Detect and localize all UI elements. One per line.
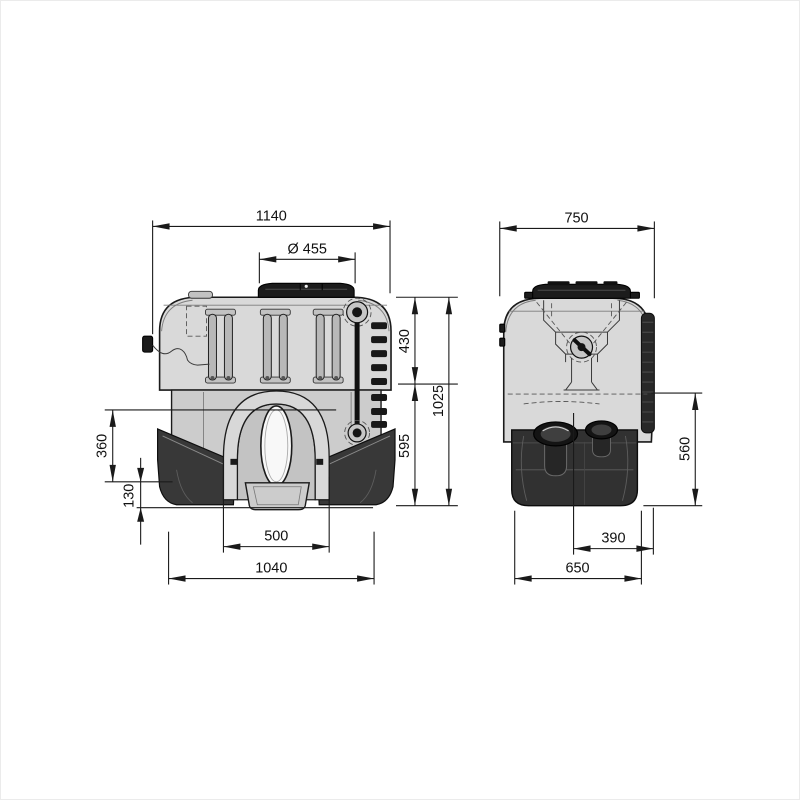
dim-label-side-outlet-offset: 390 — [601, 531, 625, 547]
dim-label-front-base-width: 1040 — [255, 561, 287, 577]
dim-label-front-foot-height: 130 — [122, 484, 138, 508]
dim-front-foot-height: 130 — [122, 458, 144, 545]
inspection-oval — [261, 406, 292, 486]
dim-front-filler-diameter: Ø 455 — [259, 241, 355, 283]
dim-label-front-filler-diameter: Ø 455 — [288, 241, 327, 257]
dim-label-side-base-depth: 650 — [565, 561, 589, 577]
side-view — [500, 281, 655, 505]
mounting-foot — [245, 483, 309, 510]
dim-label-side-overall-depth: 750 — [564, 210, 588, 226]
dim-label-front-total-height: 1025 — [431, 385, 447, 417]
dim-label-front-arch-width: 500 — [264, 529, 288, 545]
front-tank-lid — [258, 283, 354, 297]
tank-dimension-drawing: 1140 Ø 455 430 595 1025 360 130 — [1, 1, 799, 799]
dim-side-base-depth: 650 — [515, 511, 642, 585]
arch-clip — [230, 459, 237, 465]
arch-clip — [316, 459, 323, 465]
dim-label-front-lower-height: 595 — [397, 434, 413, 458]
dim-label-front-arch-top-offset: 360 — [95, 434, 111, 458]
side-tank-lid — [525, 281, 640, 298]
front-view — [143, 283, 395, 509]
side-edge-clip — [500, 338, 505, 346]
dim-front-total-height: 1025 — [431, 297, 449, 505]
side-edge-clip — [500, 324, 505, 332]
dim-label-side-lower-height: 560 — [677, 437, 693, 461]
side-base — [512, 430, 638, 506]
dim-label-front-upper-height: 430 — [397, 329, 413, 353]
side-tank-body — [504, 298, 654, 442]
top-vent — [189, 291, 213, 298]
technical-drawing-canvas: 1140 Ø 455 430 595 1025 360 130 — [0, 0, 800, 800]
side-ribbed-strip — [641, 313, 654, 433]
dim-label-front-overall-width: 1140 — [256, 208, 287, 224]
